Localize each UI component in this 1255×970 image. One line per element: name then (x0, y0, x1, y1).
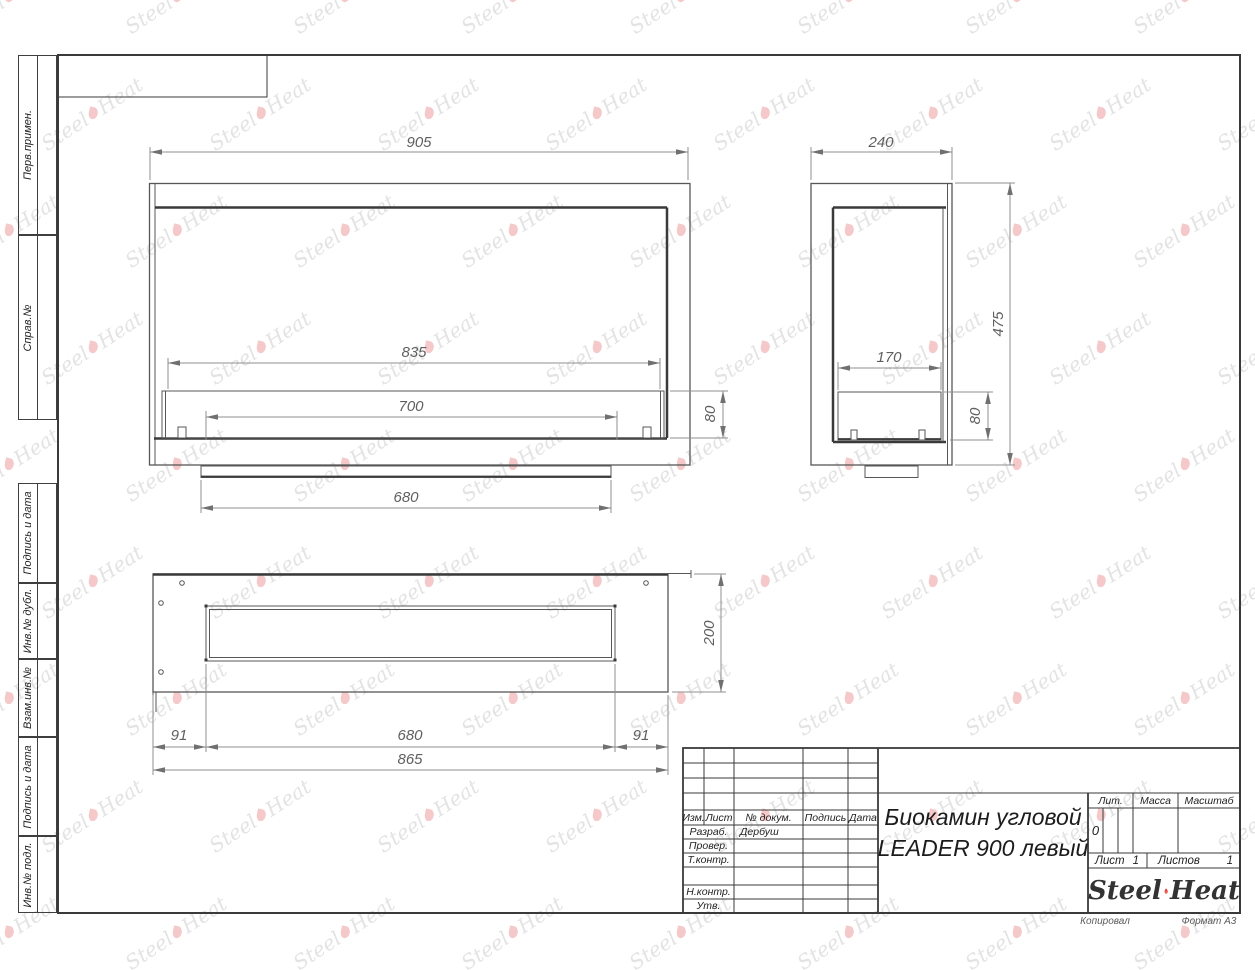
drawing-linework: 905 835 700 680 80 (0, 0, 1255, 970)
dim-front-680: 680 (393, 489, 419, 506)
dim-front-700: 700 (398, 398, 424, 415)
dim-side-170: 170 (876, 349, 902, 366)
dim-side-240: 240 (867, 134, 894, 151)
dim-front-80: 80 (702, 405, 719, 422)
front-view: 905 835 700 680 80 (150, 134, 729, 513)
dim-side-475: 475 (990, 311, 1007, 337)
side-view: 240 475 170 80 (811, 134, 1015, 478)
drawing-sheet: SteelHeatSteelHeatSteelHeatSteelHeatStee… (0, 0, 1255, 970)
top-view-dimensions: 91 680 91 865 200 (153, 574, 726, 775)
dim-front-905: 905 (406, 134, 432, 151)
dim-top-865: 865 (397, 751, 423, 768)
dim-top-200: 200 (701, 620, 718, 647)
dim-top-91-right: 91 (633, 727, 650, 744)
top-view: 91 680 91 865 200 (153, 570, 726, 775)
dim-side-80: 80 (967, 407, 984, 424)
dim-top-91-left: 91 (171, 727, 188, 744)
title-block-grid (683, 748, 1240, 913)
front-view-dimensions: 905 835 700 680 80 (150, 134, 728, 513)
dim-front-835: 835 (401, 344, 427, 361)
dim-top-680: 680 (397, 727, 423, 744)
